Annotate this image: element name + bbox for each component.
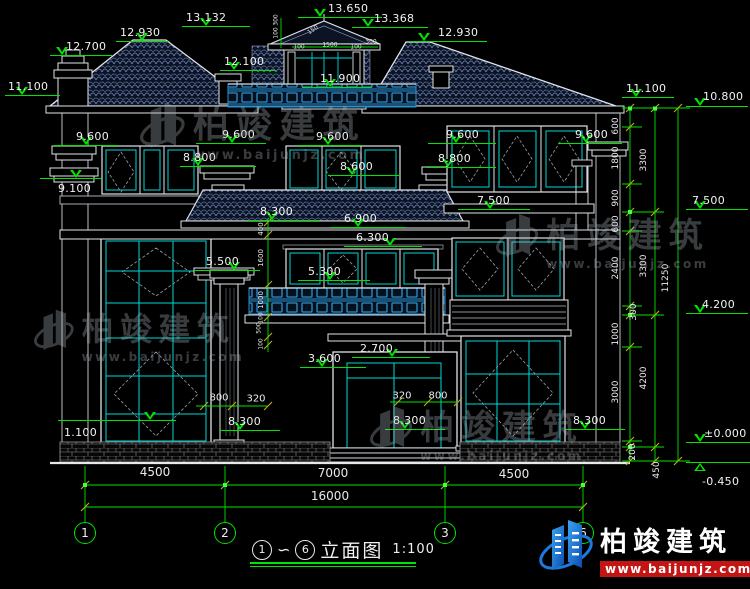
dimension-label: 100 <box>273 27 280 38</box>
elevation-value: 2.700 <box>360 342 393 355</box>
elevation-value: 12.100 <box>224 55 264 68</box>
dimension-label: 100 <box>258 338 265 349</box>
brand-name: 柏竣建筑 <box>600 520 750 559</box>
elevation-value: 9.600 <box>575 128 608 141</box>
elevation-value: 9.100 <box>58 182 91 195</box>
elevation-value: 8.600 <box>340 160 373 173</box>
elevation-value: 13.650 <box>328 2 368 15</box>
dimension-label: 16000 <box>311 489 349 503</box>
cad-elevation-drawing: 12.70012.93013.13213.65013.36812.10011.9… <box>0 0 750 589</box>
dimension-label: 100 <box>293 44 304 51</box>
dimension-label: 200 <box>628 443 638 460</box>
grid-bubble: 3 <box>434 522 456 544</box>
title-underline-2 <box>250 566 416 567</box>
elevation-value: 13.132 <box>186 11 226 24</box>
elevation-value: 9.600 <box>222 128 255 141</box>
grid-bubble: 1 <box>74 522 96 544</box>
dimension-label: 100 <box>350 44 361 51</box>
dimension-label: 3300 <box>639 149 649 172</box>
elevation-value: 13.368 <box>374 12 414 25</box>
elevation-value: 12.700 <box>66 40 106 53</box>
elevation-value: 1.100 <box>64 426 97 439</box>
elevation-value: 12.930 <box>120 26 160 39</box>
title-tilde: ∽ <box>277 540 290 559</box>
dimension-label: 11250 <box>661 264 671 293</box>
elevation-value: -0.450 <box>702 475 739 488</box>
elevation-value: 5.300 <box>308 265 341 278</box>
dimension-label: 300 <box>629 303 639 320</box>
elevation-value: ±0.000 <box>704 427 747 440</box>
elevation-value: 5.500 <box>206 255 239 268</box>
elevation-value: 11.900 <box>320 72 360 85</box>
dimension-label: 4500 <box>499 467 530 481</box>
title-from-bubble: 1 <box>252 540 272 560</box>
dimension-label: 400 <box>257 222 265 235</box>
dimension-label: 800 <box>209 393 228 404</box>
elevation-value: 8.300 <box>260 205 293 218</box>
dimension-label: 4200 <box>639 367 649 390</box>
drawing-title: 1 ∽ 6 立面图 1:100 <box>252 536 435 563</box>
elevation-value: 3.600 <box>308 352 341 365</box>
elevation-value: 10.800 <box>703 90 743 103</box>
dimension-label: 2400 <box>611 257 621 280</box>
dimension-label: 320 <box>392 391 411 402</box>
brand-logo: 柏竣建筑 www.baijunjz.com <box>538 512 750 582</box>
dimension-label: 800 <box>428 391 447 402</box>
dimension-label: 900 <box>611 189 621 206</box>
title-scale: 1:100 <box>392 542 434 557</box>
dimension-label: 1800 <box>611 147 621 170</box>
dimension-label: 450 <box>652 461 662 478</box>
elevation-value: 8.300 <box>573 414 606 427</box>
dimension-label: 500 <box>256 322 263 333</box>
dimension-label: 600 <box>611 215 621 232</box>
elevation-value: 7.500 <box>692 194 725 207</box>
dimension-label: 4500 <box>140 465 171 479</box>
elevation-value: 7.500 <box>477 194 510 207</box>
dimension-label: 3300 <box>639 255 649 278</box>
elevation-value: 8.300 <box>393 414 426 427</box>
brand-logo-icon <box>538 512 596 582</box>
dimension-label: 600 <box>611 117 621 134</box>
elevation-value: 11.100 <box>626 82 666 95</box>
elevation-value: 6.900 <box>344 212 377 225</box>
elevation-value: 9.600 <box>446 128 479 141</box>
dimension-label: 1500 <box>322 42 337 49</box>
elevation-value: 11.100 <box>8 80 48 93</box>
elevation-value: 8.800 <box>183 151 216 164</box>
brand-url: www.baijunjz.com <box>600 561 750 577</box>
dimension-label: 1600 <box>257 249 265 267</box>
elevation-value: 6.300 <box>356 231 389 244</box>
dimension-label: 320 <box>246 394 265 405</box>
dimension-label: 1000 <box>257 291 265 309</box>
title-to-bubble: 6 <box>295 540 315 560</box>
grid-bubble: 2 <box>214 522 236 544</box>
dimension-label: 300 <box>365 39 376 46</box>
dimension-label: 1000 <box>611 323 621 346</box>
title-name: 立面图 <box>320 536 383 563</box>
dimension-label: 7000 <box>318 466 349 480</box>
elevation-value: 9.600 <box>76 130 109 143</box>
elevation-value: 4.200 <box>702 298 735 311</box>
dimension-label: 300 <box>273 14 280 25</box>
elevation-value: 12.930 <box>438 26 478 39</box>
elevation-value: 9.600 <box>316 130 349 143</box>
elevation-value: 8.300 <box>228 415 261 428</box>
elevation-value: 8.800 <box>438 152 471 165</box>
dimension-label: 3000 <box>611 381 621 404</box>
title-underline <box>250 562 416 564</box>
